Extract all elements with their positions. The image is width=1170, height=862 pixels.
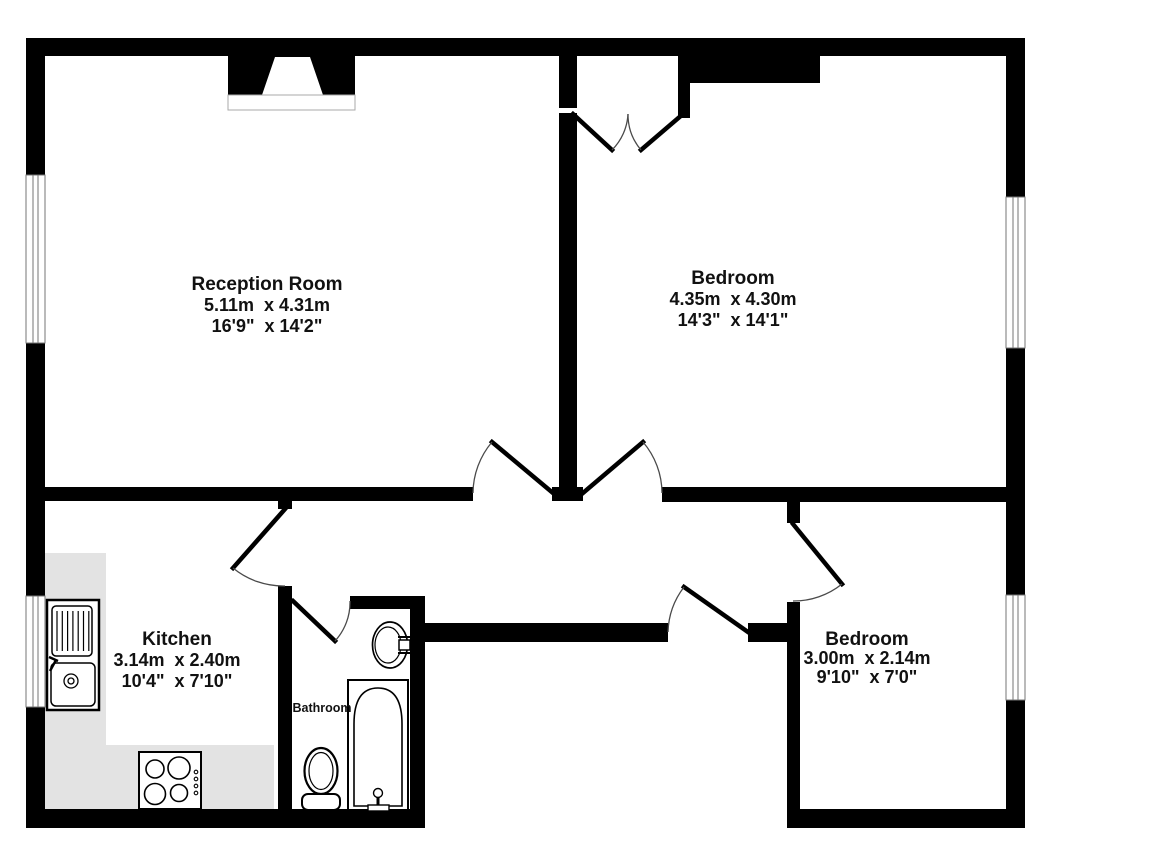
bedroom1-window: [1006, 197, 1025, 348]
room-dim-imperial: 9'10" x 7'0": [817, 667, 918, 687]
wall-segment: [559, 56, 577, 487]
floorplan: Reception Room 5.11m x 4.31m 16'9" x 14'…: [0, 0, 1170, 862]
wall-segment: [1006, 700, 1025, 828]
bedroom1-door: [583, 442, 662, 493]
room-name: Bedroom: [825, 629, 908, 650]
wall-segment: [26, 38, 1025, 56]
wall-segment: [423, 623, 668, 642]
bedroom2-door: [793, 524, 842, 601]
reception-window: [26, 175, 45, 343]
wall-segment: [26, 38, 45, 175]
room-dim-metric: 3.00m x 2.14m: [803, 648, 930, 668]
reception-label: Reception Room 5.11m x 4.31m 16'9" x 14'…: [192, 274, 343, 336]
room-dim-imperial: 10'4" x 7'10": [122, 671, 233, 691]
entrance-door: [668, 587, 748, 632]
wall-segment: [787, 602, 800, 828]
reception-door: [473, 442, 553, 493]
room-dim-imperial: 16'9" x 14'2": [212, 316, 323, 336]
bathroom-sink: [373, 622, 411, 668]
bathroom-label: Bathroom: [292, 701, 351, 715]
kitchen-window: [26, 596, 45, 707]
wall-segment: [1006, 348, 1025, 595]
room-dim-imperial: 14'3" x 14'1": [678, 310, 789, 330]
wardrobe-frame-gap: [558, 108, 578, 113]
bathroom-door: [293, 601, 350, 641]
kitchen-sink-unit: [47, 600, 99, 710]
wall-segment: [410, 596, 425, 827]
wall-segment: [45, 487, 473, 501]
wall-segment: [26, 809, 425, 828]
wardrobe-double-doors: [573, 114, 683, 150]
wall-segment: [678, 56, 690, 118]
wall-segment: [787, 809, 1025, 828]
room-name: Reception Room: [192, 274, 343, 295]
bathtub: [348, 680, 408, 812]
fireplace-chimney-breast: [228, 56, 355, 95]
chimney-breast-bedroom: [690, 56, 820, 83]
wall-segment: [662, 487, 1006, 502]
room-dim-metric: 4.35m x 4.30m: [669, 289, 796, 309]
fireplace-hearth: [228, 95, 355, 110]
wall-segment: [552, 487, 583, 501]
wall-segment: [1006, 38, 1025, 197]
room-dim-metric: 5.11m x 4.31m: [204, 295, 330, 315]
room-name: Kitchen: [142, 629, 212, 650]
toilet: [302, 748, 340, 810]
bedroom2-label: Bedroom 3.00m x 2.14m 9'10" x 7'0": [803, 629, 930, 687]
bedroom2-window: [1006, 595, 1025, 700]
hob: [139, 752, 201, 809]
wall-segment: [787, 502, 800, 523]
bedroom1-label: Bedroom 4.35m x 4.30m 14'3" x 14'1": [669, 268, 796, 330]
kitchen-door: [233, 509, 285, 586]
wall-segment: [278, 586, 292, 809]
exterior-walls: [26, 38, 1025, 828]
room-dim-metric: 3.14m x 2.40m: [113, 650, 240, 670]
drainer-grooves: [57, 611, 89, 651]
doors: [233, 114, 842, 641]
kitchen-label: Kitchen 3.14m x 2.40m 10'4" x 7'10": [113, 629, 240, 691]
wall-segment: [26, 343, 45, 596]
room-name: Bathroom: [292, 701, 351, 715]
room-name: Bedroom: [691, 268, 774, 289]
interior-walls: [45, 56, 1006, 828]
